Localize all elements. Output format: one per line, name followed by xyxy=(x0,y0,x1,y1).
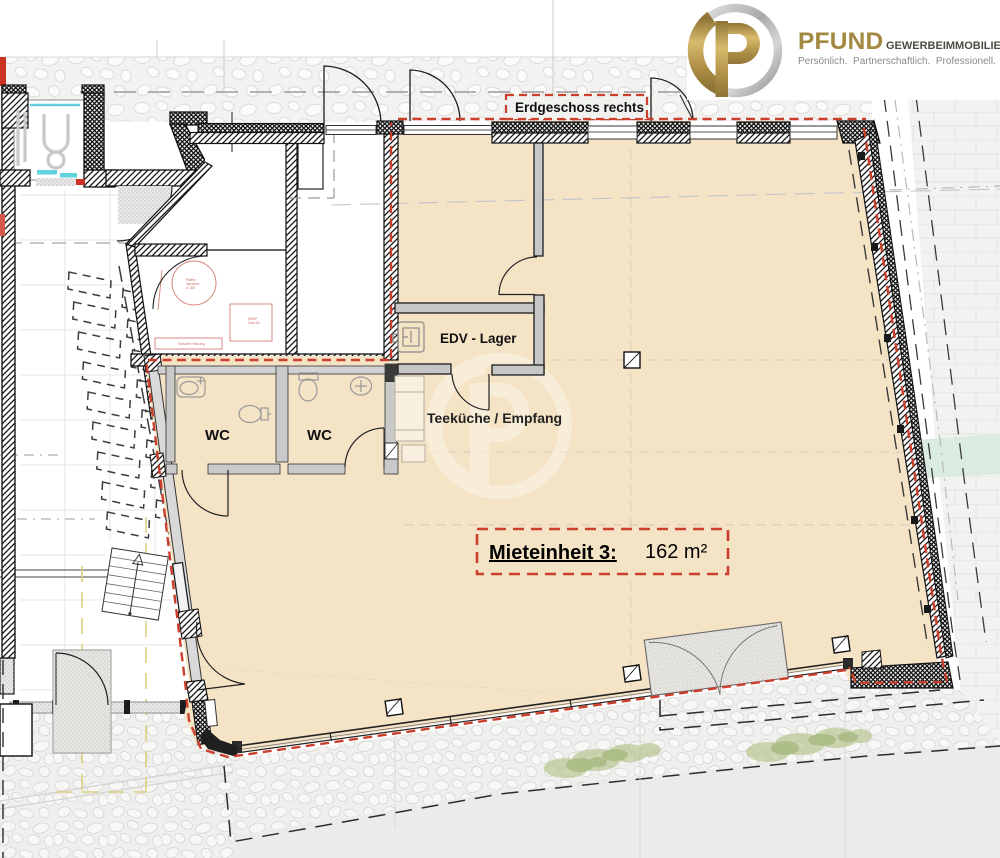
svg-text:EDV - Lager: EDV - Lager xyxy=(440,331,517,346)
svg-text:Mieteinheit 3:: Mieteinheit 3: xyxy=(489,542,617,564)
svg-text:PFUND: PFUND xyxy=(798,28,883,55)
svg-text:WC: WC xyxy=(307,427,332,444)
svg-text:Teeküche / Empfang: Teeküche / Empfang xyxy=(427,410,562,426)
svg-text:162 m²: 162 m² xyxy=(645,541,708,563)
svg-text:a 100: a 100 xyxy=(186,286,195,290)
svg-text:Vorlufer Heizung: Vorlufer Heizung xyxy=(178,342,205,346)
svg-text:Solo-M: Solo-M xyxy=(248,321,259,325)
svg-text:Erdgeschoss rechts: Erdgeschoss rechts xyxy=(515,100,644,115)
svg-text:GEWERBEIMMOBILIEN: GEWERBEIMMOBILIEN xyxy=(886,40,1000,52)
svg-text:Persönlich. Partnerschaftlich: Persönlich. Partnerschaftlich. Professio… xyxy=(798,56,996,67)
svg-text:WC: WC xyxy=(205,427,230,444)
